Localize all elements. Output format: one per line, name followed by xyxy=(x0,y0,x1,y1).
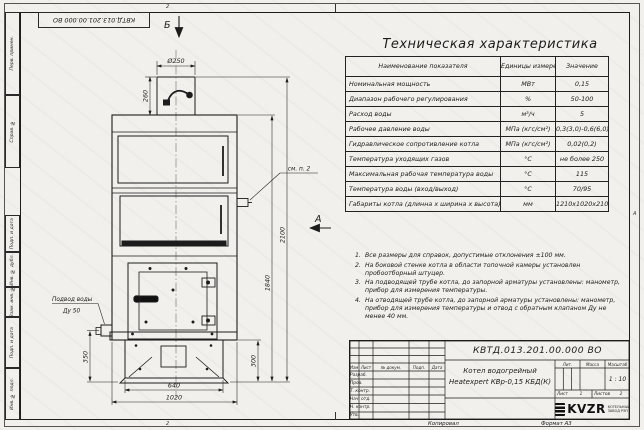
tb-product-line2: Heatexpert КВр-0,15 КБД(К) xyxy=(446,376,554,388)
note-item: 3.На подводящей трубе котла, до запорной… xyxy=(352,279,622,295)
spec-cell-value: 5 xyxy=(556,107,609,122)
note-number: 1. xyxy=(352,252,365,260)
view-arrow-b: Б xyxy=(164,16,179,37)
spec-cell-unit: °С xyxy=(501,152,556,167)
callout-note2-label: см. п. 2 xyxy=(288,167,311,173)
margin-box-perv-primen: Перв. примен. xyxy=(5,12,20,95)
water-inlet-label-1: Подвод воды xyxy=(52,297,93,303)
margin-label: Инв. № дубл. xyxy=(10,254,15,286)
spec-row: Диапазон рабочего регулирования%50-100 xyxy=(346,92,609,107)
dim-label-300: 300 xyxy=(250,355,258,367)
spec-cell-name: Габариты котла (длинна х ширина х высота… xyxy=(346,197,501,212)
spec-table: Наименование показателя Единицы измерени… xyxy=(345,56,609,212)
note-number: 4. xyxy=(352,297,365,321)
note-text: На отводящей трубе котла, до запорной ар… xyxy=(365,297,622,321)
dim-label-250: Ø250 xyxy=(166,57,184,65)
spec-cell-unit: °С xyxy=(501,167,556,182)
tb-row-nkontr: Н. контр. xyxy=(350,404,380,412)
tb-sheet-value: 1 xyxy=(575,391,587,398)
tb-doc-number: КВТД.013.201.00.000 ВО xyxy=(445,342,630,358)
view-a-label: А xyxy=(314,214,322,225)
spec-cell-value: 50-100 xyxy=(556,92,609,107)
tb-sheet-label: Лист xyxy=(557,391,573,398)
margin-box-inv-dubl: Инв. № дубл. xyxy=(5,252,20,287)
tb-col-podp: Подп. xyxy=(409,364,429,371)
dim-label-1840: 1840 xyxy=(264,275,272,291)
tb-row-utv: Утв. xyxy=(350,412,380,420)
zone-marker-right: А xyxy=(633,211,636,217)
margin-label: Подп. и дата xyxy=(10,218,15,249)
spec-row: Рабочее давление водыМПа (кгс/см²)0,3(3,… xyxy=(346,122,609,137)
spec-cell-value: 0,15 xyxy=(556,77,609,92)
spec-row: Температура уходящих газов°Сне более 250 xyxy=(346,152,609,167)
spec-row: Гидравлическое сопротивление котлаМПа (к… xyxy=(346,137,609,152)
spec-cell-value: 0,02(0,2) xyxy=(556,137,609,152)
spec-cell-name: Температура воды (вход/выход) xyxy=(346,182,501,197)
upper-door xyxy=(118,136,228,183)
spec-cell-unit: мм xyxy=(501,197,556,212)
margin-label: Справ. № xyxy=(10,120,15,143)
spec-cell-unit: °С xyxy=(501,182,556,197)
spec-cell-unit: м³/ч xyxy=(501,107,556,122)
view-b-label: Б xyxy=(164,20,171,31)
note-item: 4.На отводящей трубе котла, до запорной … xyxy=(352,297,622,321)
drawing-sheet: Перв. примен. Справ. № Подп. и дата Инв.… xyxy=(0,0,644,430)
dim-chimney-height: 260 xyxy=(142,77,157,115)
boiler-front-view: Б xyxy=(20,12,342,418)
kvzr-logo-icon xyxy=(555,403,565,416)
spec-cell-name: Гидравлическое сопротивление котла xyxy=(346,137,501,152)
spec-cell-unit: % xyxy=(501,92,556,107)
spec-cell-unit: МВт xyxy=(501,77,556,92)
note-text: На боковой стенке котла в области топочн… xyxy=(365,262,622,278)
note-item: 1.Все размеры для справок, допустимые от… xyxy=(352,252,622,260)
margin-label: Подп. и дата xyxy=(10,327,15,358)
spec-cell-value: не более 250 xyxy=(556,152,609,167)
tb-lit-label: Лит. xyxy=(555,361,580,368)
tb-row-prov: Пров. xyxy=(350,380,380,388)
title-block: КВТД.013.201.00.000 ВО Изм Лист № докум.… xyxy=(349,340,630,420)
sampling-fitting xyxy=(237,199,252,207)
spec-cell-name: Номинальная мощность xyxy=(346,77,501,92)
zone-marker-bottom: 2 xyxy=(166,421,169,427)
note-number: 2. xyxy=(352,262,365,278)
margin-box-inv-podl: Инв. № подл. xyxy=(5,368,20,420)
spec-row: Температура воды (вход/выход)°С70/95 xyxy=(346,182,609,197)
margin-label: Инв. № подл. xyxy=(10,378,15,410)
water-inlet-label-2: Ду 50 xyxy=(62,309,80,315)
dim-body-height: 1840 xyxy=(238,115,275,381)
tb-col-izm: Изм xyxy=(349,364,359,371)
copy-label: Копировал xyxy=(428,421,459,427)
tb-sheets-label: Листов xyxy=(594,391,614,398)
tb-col-doc: № докум. xyxy=(373,364,409,371)
spec-row: Номинальная мощностьМВт0,15 xyxy=(346,77,609,92)
callout-note2: см. п. 2 xyxy=(250,167,318,201)
tb-row-tkontr: Т. контр. xyxy=(350,388,380,396)
tb-mass-label: Масса xyxy=(580,361,605,368)
note-number: 3. xyxy=(352,279,365,295)
spec-table-title: Техническая характеристика xyxy=(358,37,622,52)
dim-label-260: 260 xyxy=(142,90,150,102)
spec-cell-value: 1210х1020х2100 xyxy=(556,197,609,212)
tb-col-data: Дата xyxy=(429,364,445,371)
dim-overall-width: 1020 xyxy=(112,342,237,405)
spec-row: Максимальная рабочая температура воды°С1… xyxy=(346,167,609,182)
dim-base-height: 300 xyxy=(238,340,261,381)
margin-box-podp-data-1: Подп. и дата xyxy=(5,215,20,252)
dim-label-2100: 2100 xyxy=(279,227,287,243)
spec-cell-name: Диапазон рабочего регулирования xyxy=(346,92,501,107)
kvzr-logo: KVZR КОТЕЛЬНЫЙ ЗАВОД РЭП xyxy=(555,398,630,420)
spec-cell-name: Рабочее давление воды xyxy=(346,122,501,137)
zone-tick-top xyxy=(335,4,336,12)
spec-header-row: Наименование показателя Единицы измерени… xyxy=(346,57,609,77)
middle-door xyxy=(120,196,228,246)
margin-box-podp-data-2: Подп. и дата xyxy=(5,317,20,368)
spec-cell-value: 0,3(3,0)-0,6(6,0) xyxy=(556,122,609,137)
kvzr-logo-subtitle: КОТЕЛЬНЫЙ ЗАВОД РЭП xyxy=(608,405,630,414)
spec-cell-value: 115 xyxy=(556,167,609,182)
callout-water-inlet: Подвод воды Ду 50 xyxy=(52,297,105,324)
spec-cell-unit: МПа (кгс/см²) xyxy=(501,137,556,152)
dim-total-height: 2100 xyxy=(196,77,290,381)
tb-col-list: Лист xyxy=(359,364,373,371)
spec-row: Габариты котла (длинна х ширина х высота… xyxy=(346,197,609,212)
tb-row-razrab: Разраб. xyxy=(350,372,380,380)
note-text: Все размеры для справок, допустимые откл… xyxy=(365,252,622,260)
tb-scale-value: 1 : 10 xyxy=(605,372,630,386)
spec-cell-value: 70/95 xyxy=(556,182,609,197)
spec-col-unit: Единицы измерения xyxy=(501,57,556,77)
spec-col-name: Наименование показателя xyxy=(346,57,501,77)
note-text: На подводящей трубе котла, до запорной а… xyxy=(365,279,622,295)
dim-label-350: 350 xyxy=(82,351,90,363)
margin-label: Взам. инв. № xyxy=(10,286,15,317)
zone-marker-top: 2 xyxy=(166,4,169,10)
dim-label-640: 640 xyxy=(168,382,180,390)
tb-sheets-value: 2 xyxy=(615,391,627,398)
spec-cell-name: Расход воды xyxy=(346,107,501,122)
note-item: 2.На боковой стенке котла в области топо… xyxy=(352,262,622,278)
tb-scale-label: Масштаб xyxy=(605,361,630,368)
kvzr-logo-text: KVZR xyxy=(567,402,606,416)
spec-cell-unit: МПа (кгс/см²) xyxy=(501,122,556,137)
margin-box-sprav: Справ. № xyxy=(5,95,20,168)
boiler-body xyxy=(112,115,237,340)
base-pedestal xyxy=(110,332,237,383)
kvzr-sub-2: ЗАВОД РЭП xyxy=(608,409,630,413)
view-arrow-a: А xyxy=(310,214,331,228)
dim-label-1020: 1020 xyxy=(166,394,182,402)
margin-box-vzam-inv: Взам. инв. № xyxy=(5,287,20,317)
spec-col-value: Значение xyxy=(556,57,609,77)
notes-list: 1.Все размеры для справок, допустимые от… xyxy=(352,252,622,323)
furnace-door xyxy=(128,263,217,339)
spec-cell-name: Максимальная рабочая температура воды xyxy=(346,167,501,182)
format-label: Формат А3 xyxy=(541,421,572,427)
tb-row-nachotd: Нач. отд. xyxy=(350,396,380,404)
spec-cell-name: Температура уходящих газов xyxy=(346,152,501,167)
spec-row: Расход водым³/ч5 xyxy=(346,107,609,122)
margin-label: Перв. примен. xyxy=(10,36,15,71)
dim-base-width: 640 xyxy=(125,380,223,393)
